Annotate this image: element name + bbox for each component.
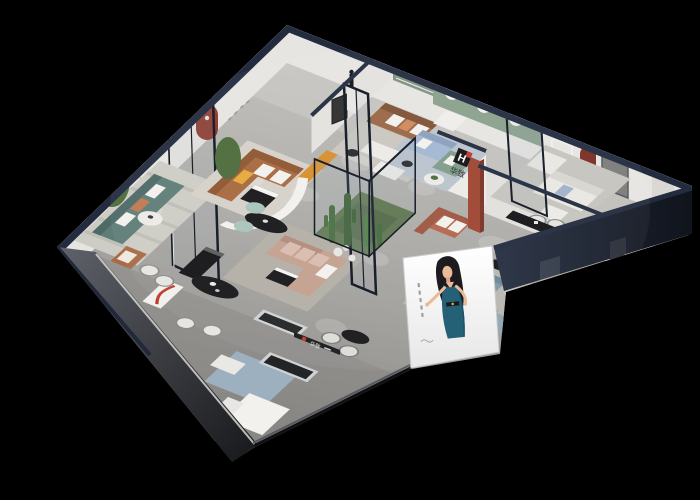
showroom-svg: H 华致 华致 — [0, 0, 700, 500]
showroom-render: H 华致 华致 — [0, 0, 700, 500]
